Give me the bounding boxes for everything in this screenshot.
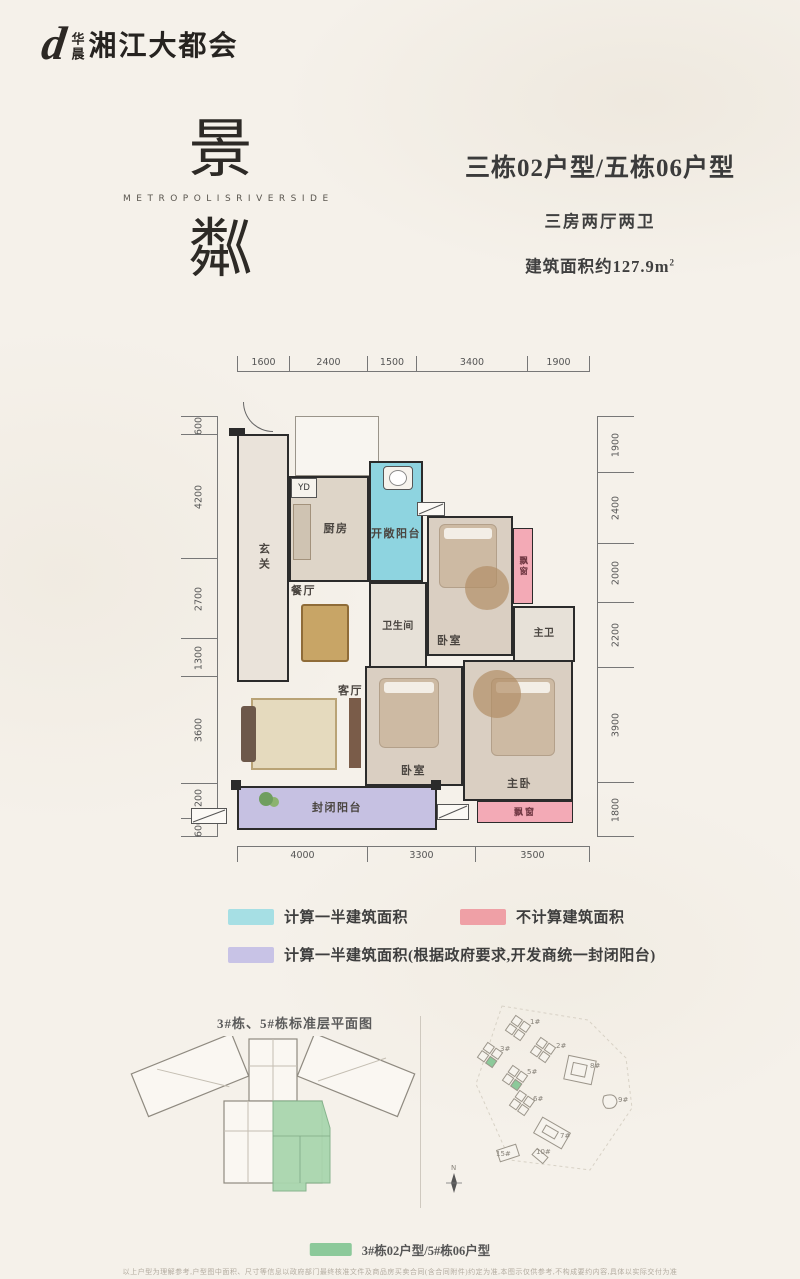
brand-logo-cn-small: 华晨 [71, 32, 84, 62]
wall-segment [231, 780, 241, 790]
dim-value: 1300 [194, 645, 205, 669]
room-master-bath: 主卫 [513, 606, 575, 662]
site-building-label: 5# [527, 1068, 537, 1076]
bay-window-bottom-label: 飘窗 [514, 806, 536, 818]
standard-floor-title: 3#栋、5#栋标准层平面图 [150, 1013, 440, 1032]
dining-table [301, 604, 349, 662]
legend-item: 不计算建筑面积 [460, 906, 625, 927]
ac-platform-icon [191, 808, 227, 824]
room-bedroom-bottom-label: 卧室 [401, 764, 426, 779]
site-building-label: 10# [536, 1148, 551, 1156]
floor-plan: 1600 2400 1500 3400 1900 600 4200 2700 1… [167, 352, 637, 872]
site-building-label: 15# [496, 1150, 511, 1158]
dim-value: 4200 [194, 484, 205, 508]
site-building-label: 6# [533, 1095, 543, 1103]
room-bathroom: 卫生间 [369, 582, 427, 672]
dim-value: 1800 [611, 797, 622, 821]
room-enclosed-balcony-label: 封闭阳台 [312, 801, 362, 816]
dim-value: 1900 [528, 356, 590, 371]
room-bathroom-label: 卫生间 [382, 620, 414, 634]
dim-value: 4000 [238, 847, 368, 862]
legend-swatch-cyan [228, 909, 274, 925]
dims-bottom: 4000 3300 3500 [237, 846, 590, 862]
brand-logo: d 华晨 湘江大都会 [42, 24, 239, 65]
bed-graphic [379, 678, 439, 748]
legend-swatch-lavender [228, 947, 274, 963]
dims-top: 1600 2400 1500 3400 1900 [237, 356, 590, 372]
section-divider [420, 1016, 421, 1208]
brand-logo-cn-large: 湘江大都会 [89, 24, 239, 64]
legend-label: 计算一半建筑面积 [284, 906, 408, 927]
dims-left: 600 4200 2700 1300 3600 1200 600 [181, 416, 218, 837]
compass-label: N [451, 1164, 456, 1172]
rug-graphic [465, 566, 509, 610]
hero-char-bottom: 粼 [118, 210, 323, 290]
unit-area-sup: 2 [669, 258, 675, 268]
legend-item: 计算一半建筑面积 [228, 906, 408, 927]
rug-graphic [473, 670, 521, 718]
room-master-bath-label: 主卫 [534, 627, 555, 641]
site-building-label: 9# [618, 1096, 628, 1104]
plan-box: 玄关 厨房 YD 开敞阳台 卫生间 餐厅 卧室 [237, 416, 589, 836]
plant-icon [259, 792, 273, 806]
dim-value: 1600 [238, 356, 290, 371]
dim-value: 3300 [368, 847, 476, 862]
hero-char-top: 景 [118, 110, 323, 190]
poster: d 华晨 湘江大都会 景 METROPOLISRIVERSIDE 粼 三栋02户… [0, 0, 800, 1279]
living-rug [251, 698, 337, 770]
dim-value: 2700 [194, 586, 205, 610]
dim-value: 1500 [368, 356, 417, 371]
unit-legend-label: 3#栋02户型/5#栋06户型 [362, 1240, 490, 1259]
legend-swatch-pink [460, 909, 506, 925]
dim-value: 3400 [417, 356, 528, 371]
site-plan: 1# 2# 3# 5# 8# 6# 9# 7# 15# 10# N [440, 998, 695, 1228]
zone-dining-label: 餐厅 [291, 584, 316, 599]
hero-english-subtitle: METROPOLISRIVERSIDE [123, 194, 323, 204]
room-open-balcony-label: 开敞阳台 [371, 527, 421, 542]
unit-info: 三栋02户型/五栋06户型 三房两厅两卫 建筑面积约127.9m2 [430, 148, 770, 277]
site-building-label: 7# [560, 1132, 570, 1140]
dim-value: 2400 [290, 356, 368, 371]
dim-value: 2000 [611, 561, 622, 585]
room-bedroom-top-label: 卧室 [437, 634, 462, 649]
wall-segment [431, 780, 441, 790]
entry-door-arc [243, 402, 273, 432]
tv-cabinet [349, 698, 361, 768]
room-kitchen-label: 厨房 [324, 522, 349, 537]
roof-platform [295, 416, 379, 476]
kitchen-counter [293, 504, 311, 560]
dim-value: 2400 [611, 496, 622, 520]
legend-label: 计算一半建筑面积(根据政府要求,开发商统一封闭阳台) [284, 944, 656, 965]
unit-legend: 3#栋02户型/5#栋06户型 [310, 1240, 490, 1259]
compass-icon: N [446, 1164, 462, 1193]
dim-value: 600 [194, 416, 205, 434]
bay-window-top-label: 飘窗 [517, 556, 528, 577]
legend-item: 计算一半建筑面积(根据政府要求,开发商统一封闭阳台) [228, 944, 656, 965]
site-building-label: 8# [590, 1062, 600, 1070]
bay-window-bottom: 飘窗 [477, 801, 573, 823]
brand-logo-mark-icon: d [39, 25, 68, 65]
room-hallway: 玄关 [237, 434, 289, 682]
sofa-graphic [241, 706, 256, 762]
site-building-label: 1# [530, 1018, 540, 1026]
room-master-bedroom-label: 主卧 [507, 777, 532, 792]
room-hallway-label: 玄关 [256, 543, 271, 573]
dim-value: 3600 [194, 718, 205, 742]
legend-label: 不计算建筑面积 [516, 906, 625, 927]
unit-room-count: 三房两厅两卫 [430, 208, 770, 232]
unit-title: 三栋02户型/五栋06户型 [430, 148, 770, 184]
hero-brand-block: 景 METROPOLISRIVERSIDE 粼 [118, 110, 323, 290]
flue-chip: YD [291, 478, 317, 498]
dim-value: 1900 [611, 432, 622, 456]
unit-area-text: 建筑面积约127.9m [525, 257, 669, 276]
balcony-sink-icon [383, 466, 413, 490]
ac-platform-icon [417, 502, 445, 516]
dims-right: 1900 2400 2000 2200 3900 1800 [597, 416, 634, 837]
standard-floor-diagram [128, 1036, 418, 1211]
site-building-label: 3# [500, 1045, 510, 1053]
zone-living-label: 客厅 [338, 684, 363, 699]
dim-value: 3900 [611, 713, 622, 737]
dim-value: 3500 [476, 847, 590, 862]
ac-platform-icon [437, 804, 469, 820]
plan-legend: 计算一半建筑面积 不计算建筑面积 计算一半建筑面积(根据政府要求,开发商统一封闭… [228, 906, 668, 970]
legend-swatch-green [310, 1243, 352, 1256]
disclaimer-text: 以上户型为理解参考,户型图中面积、尺寸等信息以政府部门最终核准文件及商品房买卖合… [0, 1267, 800, 1277]
dim-value: 2200 [611, 623, 622, 647]
highlighted-unit [273, 1101, 330, 1191]
bay-window-top: 飘窗 [513, 528, 533, 604]
unit-area: 建筑面积约127.9m2 [430, 253, 770, 277]
site-building-label: 2# [556, 1042, 566, 1050]
